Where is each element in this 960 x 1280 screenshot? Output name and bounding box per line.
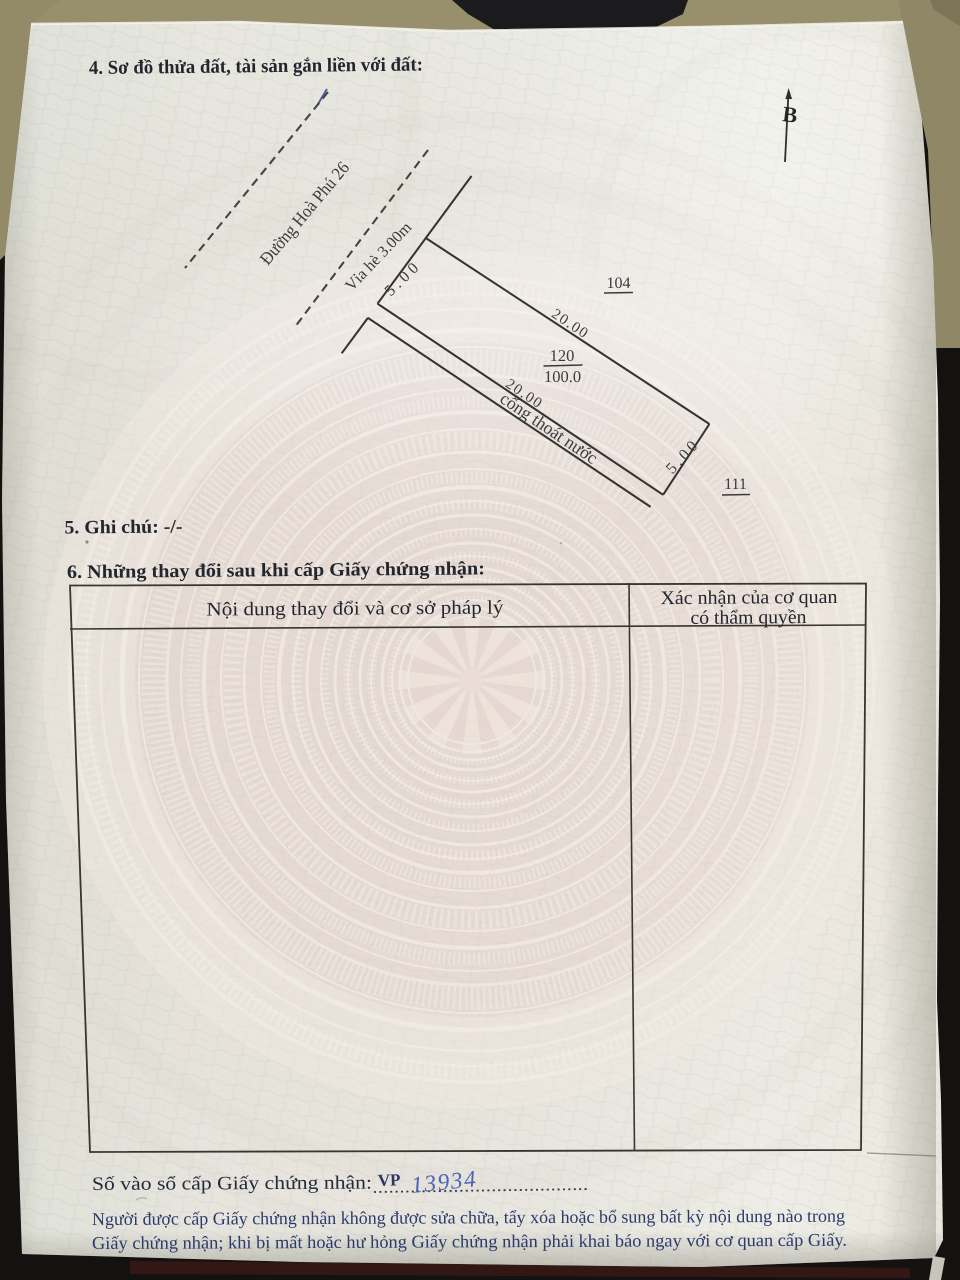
svg-text:Xác nhận của cơ quan: Xác nhận của cơ quan — [660, 587, 838, 609]
svg-text:4. Sơ đồ thửa đất, tài sản gắn: 4. Sơ đồ thửa đất, tài sản gắn liền với … — [89, 55, 423, 79]
svg-text:104: 104 — [607, 275, 631, 292]
svg-text:có thẩm quyền: có thẩm quyền — [690, 607, 807, 629]
svg-text:6. Những thay đổi sau khi cấp: 6. Những thay đổi sau khi cấp Giấy chứng… — [67, 558, 485, 583]
svg-text:120: 120 — [550, 346, 575, 365]
svg-text:5. Ghi chú: -/-: 5. Ghi chú: -/- — [64, 516, 182, 538]
svg-text:Giấy chứng nhận; khi bị mất ho: Giấy chứng nhận; khi bị mất hoặc hư hỏng… — [92, 1230, 847, 1253]
svg-text:111: 111 — [724, 476, 747, 493]
svg-text:Người được cấp Giấy chứng nhận: Người được cấp Giấy chứng nhận không đượ… — [92, 1206, 845, 1229]
svg-text:Số vào sổ cấp Giấy chứng nhận:: Số vào sổ cấp Giấy chứng nhận: — [92, 1173, 372, 1195]
svg-text:100.0: 100.0 — [544, 367, 581, 386]
svg-text:Nội dung thay đổi và cơ sở phá: Nội dung thay đổi và cơ sở pháp lý — [206, 597, 504, 620]
svg-text:VP: VP — [377, 1170, 400, 1190]
